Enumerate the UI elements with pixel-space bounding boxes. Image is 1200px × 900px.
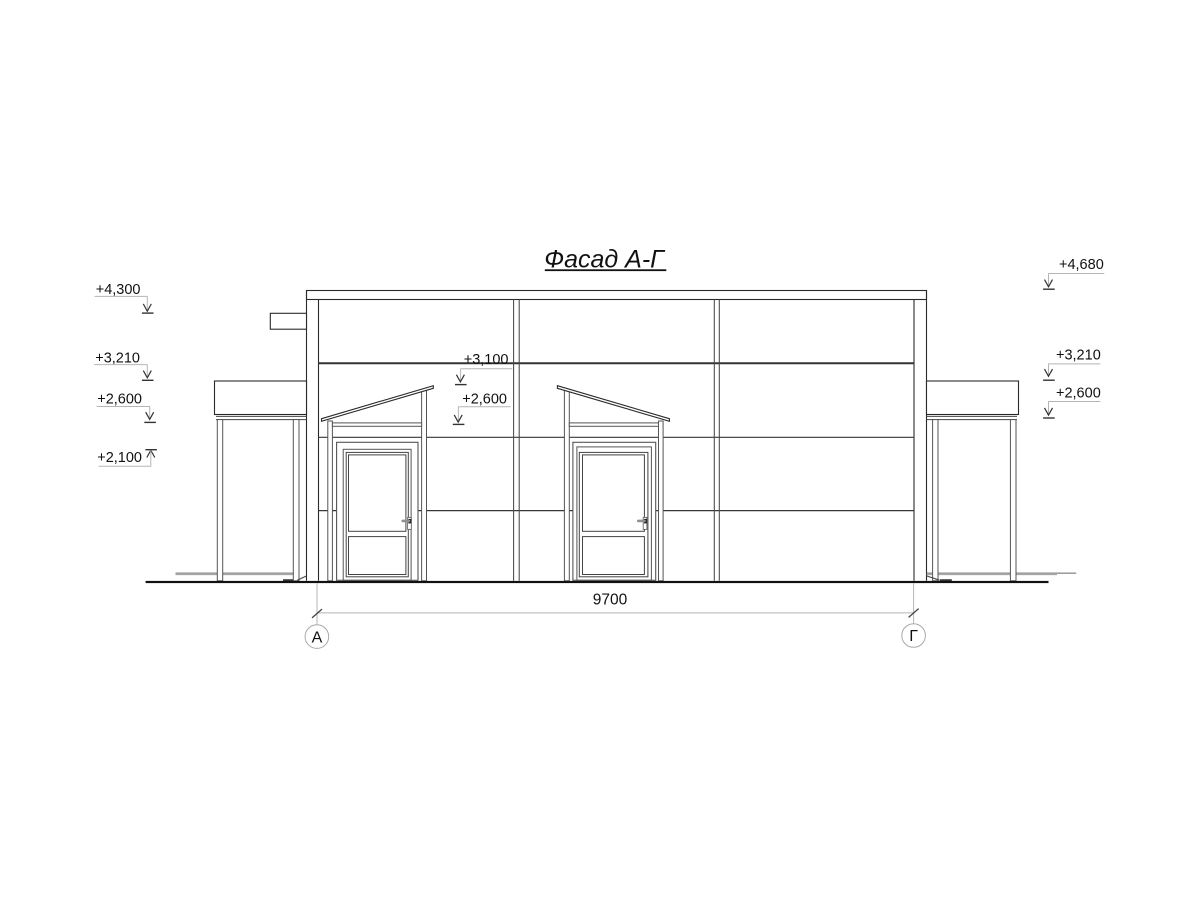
svg-text:+3,210: +3,210 [95, 350, 140, 366]
svg-text:+2,600: +2,600 [97, 391, 142, 407]
svg-text:+2,600: +2,600 [1056, 386, 1101, 402]
svg-text:+4,680: +4,680 [1059, 257, 1104, 273]
svg-text:Г: Г [909, 628, 918, 645]
svg-text:+4,300: +4,300 [96, 282, 141, 298]
svg-text:+3,100: +3,100 [464, 352, 509, 368]
svg-text:+3,210: +3,210 [1056, 348, 1101, 364]
svg-text:9700: 9700 [593, 592, 628, 609]
svg-text:А: А [312, 629, 323, 646]
svg-text:+2,100: +2,100 [97, 450, 142, 466]
svg-text:+2,600: +2,600 [462, 391, 507, 407]
